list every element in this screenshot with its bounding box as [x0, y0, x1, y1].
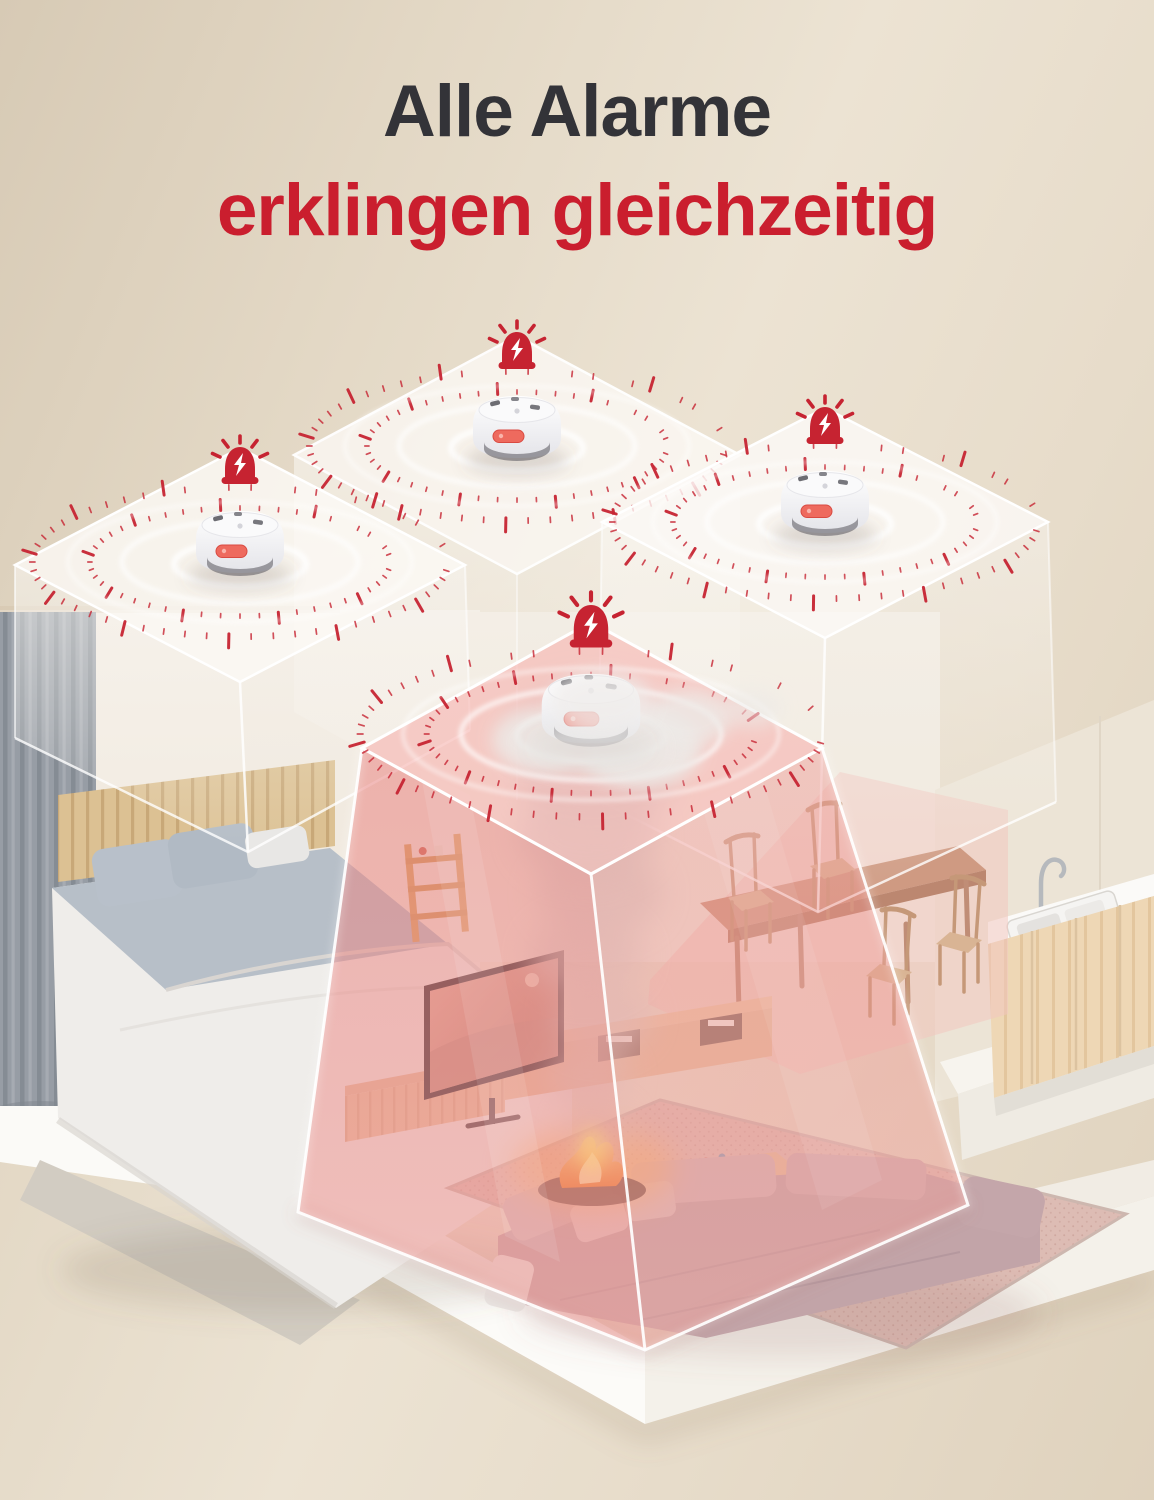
smoke-detector	[188, 511, 292, 590]
title-line-dark: Alle Alarme	[0, 62, 1154, 161]
page-title: Alle Alarme erklingen gleichzeitig	[0, 62, 1154, 261]
smoke-detector	[773, 471, 877, 550]
title-line-red: erklingen gleichzeitig	[0, 161, 1154, 260]
smoke-detector	[465, 396, 569, 475]
